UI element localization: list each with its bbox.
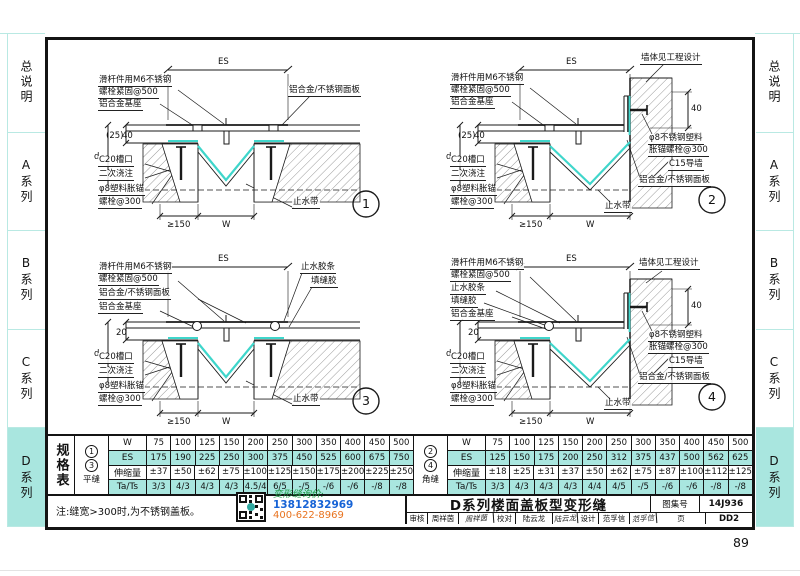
spec-cell: 200 (583, 436, 607, 450)
spec-cell: 4/4 (583, 480, 607, 494)
dim-es: ES (218, 254, 229, 264)
spec-cell: 450 (704, 436, 728, 450)
spec-cell: 175 (147, 451, 171, 465)
page-number: 89 (733, 535, 749, 550)
spec-cell: 75 (486, 436, 510, 450)
label-c20-notch: C20槽口 (98, 156, 134, 167)
detail-number-2: 2 (701, 189, 723, 211)
spec-cell: ±150 (292, 466, 316, 480)
spec-cell: 150 (220, 436, 244, 450)
spec-cell: 125 (196, 436, 220, 450)
label-wall-anchor-2: 胀锚螺栓@300 (648, 146, 709, 157)
spec-table: 规格表 1 3 平缝 W 751001251502002503003504004… (48, 434, 752, 496)
spec-cell: 100 (510, 436, 534, 450)
spec-cell: -/8 (365, 480, 389, 494)
spec-cell: 350 (317, 436, 341, 450)
label-c20-notch: C20槽口 (98, 353, 134, 364)
dim-25: (25) (458, 131, 475, 141)
spec-cell: 500 (390, 436, 413, 450)
row-cells: ±18±25±31±37±50±62±75±87±100±112±125 (486, 466, 752, 480)
page-value: DD2 (706, 513, 752, 524)
sheet-title: D系列楼面盖板型变形缝 (407, 496, 651, 512)
row-cells: 175190225250300375450525600675750 (147, 451, 413, 465)
spec-row-w: W 75100125150200250300350400450500 (109, 436, 413, 451)
spec-cell: 450 (293, 451, 317, 465)
dim-es: ES (218, 57, 229, 67)
spec-cell: 4/3 (535, 480, 559, 494)
spec-cell: ±62 (607, 466, 631, 480)
spec-cell: ±100 (680, 466, 704, 480)
dim-20: 20 (468, 328, 479, 338)
spec-cell: 250 (583, 451, 607, 465)
spec-cell: ±175 (317, 466, 341, 480)
bottom-rule (0, 570, 800, 571)
spec-cell: ±200 (341, 466, 365, 480)
spec-group2-grid: W 75100125150200250300350400450500 ES 12… (448, 436, 752, 494)
label-plastic-anchor: φ8塑料胀锚 (98, 185, 145, 196)
spec-cell: 125 (535, 436, 559, 450)
spec-cell: 4/3 (196, 480, 220, 494)
spec-cell: 750 (390, 451, 413, 465)
spec-group1-grid: W 75100125150200250300350400450500 ES 17… (109, 436, 414, 494)
dim-40: 40 (474, 131, 485, 141)
row-label: W (448, 436, 486, 450)
label-wall-anchor-1: φ8不锈钢塑料 (648, 134, 704, 145)
spec-cell: 225 (196, 451, 220, 465)
dim-25: (25) (106, 131, 123, 141)
row-label: Ta/Ts (448, 480, 486, 494)
atlas-no-label: 图集号 (651, 496, 700, 512)
spec-cell: 625 (729, 451, 752, 465)
spec-row-es: ES 175190225250300375450525600675750 (109, 451, 413, 466)
label-slider-bolt-1: 滑杆件用M6不锈钢 (98, 263, 172, 274)
label-secondary-pour: 二次浇注 (450, 367, 486, 378)
label-alu-base: 铝合金基座 (450, 98, 495, 109)
dim-w: W (222, 220, 230, 230)
spec-cell: -/5 (632, 480, 656, 494)
spec-cell: ±31 (534, 466, 558, 480)
spec-table-title: 规格表 (48, 436, 75, 494)
dim-min150: ≥150 (519, 220, 542, 230)
spec-cell: -/8 (729, 480, 752, 494)
dim-es: ES (566, 57, 577, 67)
designer-name: 范孚信 (599, 513, 630, 524)
row-cells: ±37±50±62±75±100±125±150±175±200±225±250 (147, 466, 413, 480)
sidebar-item-series-c: C系列 (8, 330, 45, 429)
spec-cell: ±75 (219, 466, 243, 480)
dim-es: ES (566, 254, 577, 264)
label-slider-bolt-1: 滑杆件用M6不锈钢 (98, 76, 172, 87)
dim-w: W (586, 220, 594, 230)
spec-cell: ±87 (656, 466, 680, 480)
designer-signature: 范孚信 (630, 512, 658, 525)
spec-cell: 175 (535, 451, 559, 465)
spec-row-tats: Ta/Ts 3/34/34/34/34/44/5-/5-/6-/6-/8-/8 (448, 480, 752, 494)
spec-cell: 250 (607, 436, 631, 450)
detail-3-flat-joint-seals: ES 滑杆件用M6不锈钢 螺栓紧固@500 铝合金/不锈钢面板 铝合金基座 止水… (48, 237, 400, 434)
spec-cell: 562 (704, 451, 728, 465)
spec-cell: -/8 (704, 480, 728, 494)
joint-type-label: 平缝 (83, 473, 100, 485)
row-label: 伸缩量 (109, 466, 147, 480)
label-slider-bolt-2: 螺栓紧固@500 (450, 271, 511, 282)
spec-cell: 400 (680, 436, 704, 450)
label-alu-base: 铝合金基座 (98, 303, 143, 314)
detail-number-1: 1 (355, 193, 377, 215)
label-waterstop: 止水带 (292, 198, 320, 209)
label-c20-notch: C20槽口 (450, 353, 486, 364)
spec-cell: 3/3 (147, 480, 171, 494)
label-secondary-pour: 二次浇注 (98, 170, 134, 181)
dim-min150: ≥150 (167, 417, 190, 427)
spec-cell: 125 (486, 451, 510, 465)
label-plastic-anchor: φ8塑料胀锚 (98, 382, 145, 393)
spec-cell: 4/5 (607, 480, 631, 494)
spec-row-w: W 75100125150200250300350400450500 (448, 436, 752, 451)
joint-type-label: 角缝 (422, 473, 439, 485)
row-cells: 75100125150200250300350400450500 (147, 436, 413, 450)
detail-1-flat-joint: ES 滑杆件用M6不锈钢 螺栓紧固@500 铝合金基座 铝合金/不锈钢面板 d … (48, 40, 400, 237)
label-wall-anchor-1: φ8不锈钢塑料 (648, 331, 704, 342)
spec-cell: ±37 (559, 466, 583, 480)
row-cells: 125150175200250312375437500562625 (486, 451, 752, 465)
spec-cell: 4/3 (559, 480, 583, 494)
detail-ref-3: 3 (85, 459, 98, 472)
spec-cell: 250 (268, 436, 292, 450)
detail-number-3: 3 (355, 390, 377, 412)
note-text: 注:缝宽>300时,为不锈钢盖板。 (56, 503, 200, 518)
label-cover-panel: 铝合金/不锈钢面板 (98, 289, 171, 300)
label-alu-base: 铝合金基座 (98, 100, 143, 111)
sidebar-item-series-a: A系列 (756, 133, 793, 232)
label-c20-notch: C20槽口 (450, 156, 486, 167)
checker-name: 陆云龙 (516, 513, 553, 524)
spec-cell: 150 (510, 451, 534, 465)
dim-min150: ≥150 (167, 220, 190, 230)
spec-cell: ±100 (244, 466, 268, 480)
spec-cell: 400 (341, 436, 365, 450)
checker-label: 校对 (494, 513, 516, 524)
detail-ref-4: 4 (424, 459, 437, 472)
label-c15-guide-wall: C15导墙 (668, 357, 704, 368)
spec-cell: 200 (559, 451, 583, 465)
spec-group2-marks: 2 4 角缝 (414, 436, 448, 494)
dim-w: W (586, 417, 594, 427)
label-anchor-spacing: 螺栓@300 (98, 395, 142, 406)
detail-number-4: 4 (701, 386, 723, 408)
spec-cell: 300 (632, 436, 656, 450)
spec-cell: ±18 (486, 466, 510, 480)
spec-cell: ±125 (729, 466, 752, 480)
watermark-phone2: 400-622-8969 (273, 511, 353, 522)
spec-cell: 312 (607, 451, 631, 465)
checker-signature: 陆云龙 (553, 512, 579, 525)
label-slider-bolt-1: 滑杆件用M6不锈钢 (450, 74, 524, 85)
label-anchor-spacing: 螺栓@300 (450, 395, 494, 406)
sidebar-item-series-d: D系列 (8, 428, 45, 527)
spec-group1-marks: 1 3 平缝 (75, 436, 109, 494)
spec-cell: 300 (244, 451, 268, 465)
detail-2-corner-joint: ES 墙体见工程设计 滑杆件用M6不锈钢 螺栓紧固@500 铝合金基座 d (2… (400, 40, 752, 237)
spec-cell: 150 (559, 436, 583, 450)
spec-cell: ±75 (631, 466, 655, 480)
label-cover-panel: 铝合金/不锈钢面板 (288, 86, 361, 97)
label-plastic-anchor: φ8塑料胀锚 (450, 185, 497, 196)
label-plastic-anchor: φ8塑料胀锚 (450, 382, 497, 393)
sidebar-item-series-d: D系列 (756, 428, 793, 527)
label-slider-bolt-1: 滑杆件用M6不锈钢 (450, 259, 524, 270)
label-wall-anchor-2: 胀锚螺栓@300 (648, 343, 709, 354)
row-label: Ta/Ts (109, 480, 147, 494)
spec-cell: ±25 (510, 466, 534, 480)
label-cover-panel: 铝合金/不锈钢面板 (638, 176, 711, 187)
label-waterstop: 止水带 (292, 395, 320, 406)
spec-cell: ±37 (147, 466, 171, 480)
spec-cell: 375 (268, 451, 292, 465)
sidebar-item-series-b: B系列 (756, 231, 793, 330)
label-water-seal-strip: 止水胶条 (450, 284, 486, 295)
spec-row-expansion: 伸缩量 ±37±50±62±75±100±125±150±175±200±225… (109, 466, 413, 481)
bottom-bar: 注:缝宽>300时,为不锈钢盖板。 变形缝询价: (48, 496, 752, 524)
row-cells: 3/34/34/34/34/44/5-/5-/6-/6-/8-/8 (486, 480, 752, 494)
spec-cell: ±50 (583, 466, 607, 480)
spec-cell: 200 (244, 436, 268, 450)
detail-ref-2: 2 (424, 445, 437, 458)
spec-cell: 300 (293, 436, 317, 450)
reviewer-signature: 周祥茵 (459, 512, 495, 525)
sidebar-right: 总说明 A系列 B系列 C系列 D系列 (756, 33, 794, 527)
sidebar-item-series-c: C系列 (756, 330, 793, 429)
row-label: ES (448, 451, 486, 465)
label-anchor-spacing: 螺栓@300 (450, 198, 494, 209)
label-anchor-spacing: 螺栓@300 (98, 198, 142, 209)
dim-wall-40: 40 (691, 104, 702, 114)
spec-cell: 190 (171, 451, 195, 465)
spec-cell: 437 (656, 451, 680, 465)
spec-cell: ±125 (268, 466, 292, 480)
dim-w: W (222, 417, 230, 427)
label-c15-guide-wall: C15导墙 (668, 160, 704, 171)
spec-cell: ±112 (704, 466, 728, 480)
label-secondary-pour: 二次浇注 (98, 367, 134, 378)
spec-cell: ±250 (390, 466, 413, 480)
dim-40: 40 (122, 131, 133, 141)
spec-cell: -/6 (680, 480, 704, 494)
sidebar-item-series-a: A系列 (8, 133, 45, 232)
spec-cell: 4/3 (510, 480, 534, 494)
note-area: 注:缝宽>300时,为不锈钢盖板。 变形缝询价: (48, 496, 405, 524)
label-wall-per-design: 墙体见工程设计 (640, 54, 702, 65)
sidebar-left: 总说明 A系列 B系列 C系列 D系列 (7, 33, 45, 527)
spec-cell: 525 (317, 451, 341, 465)
spec-cell: -/8 (390, 480, 413, 494)
qr-code (236, 492, 266, 525)
spec-cell: ±50 (171, 466, 195, 480)
reviewer-name: 周祥茵 (428, 513, 459, 524)
spec-cell: 3/3 (486, 480, 510, 494)
spec-cell: 100 (171, 436, 195, 450)
spec-cell: 600 (341, 451, 365, 465)
spec-cell: 375 (632, 451, 656, 465)
spec-row-es: ES 125150175200250312375437500562625 (448, 451, 752, 466)
page-label: 页 (657, 513, 706, 524)
label-water-seal-strip: 止水胶条 (300, 263, 336, 274)
detail-4-corner-joint-seals: ES 墙体见工程设计 滑杆件用M6不锈钢 螺栓紧固@500 止水胶条 填缝胶 铝… (400, 237, 752, 434)
detail-ref-1: 1 (85, 445, 98, 458)
label-wall-per-design: 墙体见工程设计 (638, 259, 700, 270)
reviewer-label: 审核 (407, 513, 428, 524)
sidebar-item-general-notes: 总说明 (756, 33, 793, 133)
spec-cell: -/6 (656, 480, 680, 494)
spec-cell: 4/3 (171, 480, 195, 494)
label-joint-sealant: 填缝胶 (450, 297, 478, 308)
sidebar-item-general-notes: 总说明 (8, 33, 45, 133)
spec-cell: 75 (147, 436, 171, 450)
dim-20: 20 (116, 328, 127, 338)
label-alu-base: 铝合金基座 (450, 310, 495, 321)
spec-cell: 500 (729, 436, 752, 450)
label-slider-bolt-2: 螺栓紧固@500 (450, 86, 511, 97)
spec-cell: ±225 (365, 466, 389, 480)
label-slider-bolt-2: 螺栓紧固@500 (98, 275, 159, 286)
dim-wall-40: 40 (691, 301, 702, 311)
dim-min150: ≥150 (519, 417, 542, 427)
label-secondary-pour: 二次浇注 (450, 170, 486, 181)
spec-cell: 450 (365, 436, 389, 450)
spec-cell: 675 (365, 451, 389, 465)
sidebar-item-series-b: B系列 (8, 231, 45, 330)
label-waterstop: 止水带 (604, 202, 632, 213)
row-cells: 75100125150200250300350400450500 (486, 436, 752, 450)
spec-cell: ±62 (195, 466, 219, 480)
spec-row-expansion: 伸缩量 ±18±25±31±37±50±62±75±87±100±112±125 (448, 466, 752, 481)
label-cover-panel: 铝合金/不锈钢面板 (638, 373, 711, 384)
spec-cell: 500 (680, 451, 704, 465)
atlas-no-value: 14J936 (700, 496, 752, 512)
title-block: D系列楼面盖板型变形缝 图集号 14J936 审核 周祥茵 周祥茵 校对 陆云龙… (405, 496, 752, 524)
row-label: 伸缩量 (448, 466, 486, 480)
designer-label: 设计 (578, 513, 599, 524)
label-waterstop: 止水带 (604, 399, 632, 410)
label-joint-sealant: 填缝胶 (310, 277, 338, 288)
spec-cell: 250 (220, 451, 244, 465)
drawing-frame: ES 滑杆件用M6不锈钢 螺栓紧固@500 铝合金基座 铝合金/不锈钢面板 d … (45, 37, 755, 530)
watermark: 变形缝询价: 13812832969 400-622-8969 (273, 490, 353, 521)
spec-cell: 350 (656, 436, 680, 450)
row-label: ES (109, 451, 147, 465)
label-slider-bolt-2: 螺栓紧固@500 (98, 88, 159, 99)
row-label: W (109, 436, 147, 450)
